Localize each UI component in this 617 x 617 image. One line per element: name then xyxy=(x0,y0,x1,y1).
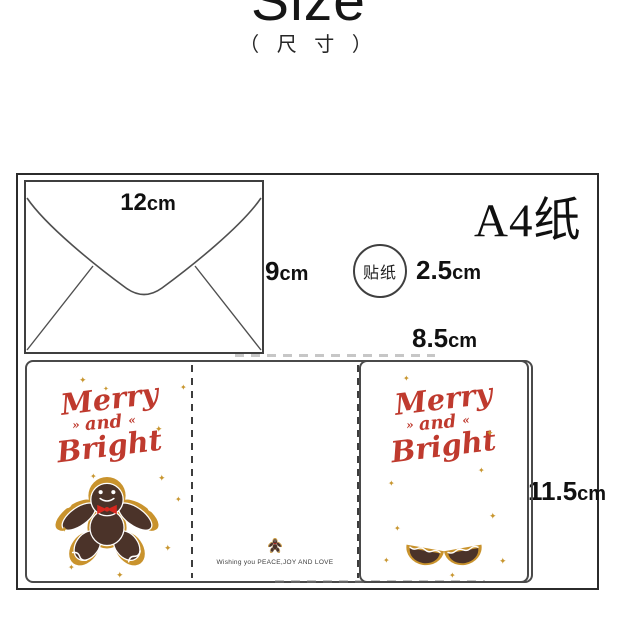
a4-paper-label: A4纸 xyxy=(474,181,581,250)
card-panel-front: Merry » and « Bright ✦ ✦ ✦ ✦ ✦ ✦ ✦ ✦ ✦ ✦… xyxy=(27,362,192,581)
card-panel-folded-front: Merry » and « Bright ✦ ✦ ✦ ✦ ✦ ✦ ✦ ✦ ✦ xyxy=(360,362,527,581)
card-height-label: 11.5cm xyxy=(528,476,606,507)
star-icon: ✦ xyxy=(403,375,410,383)
flourish-icon: » xyxy=(406,418,414,433)
flourish-icon: » xyxy=(72,418,80,433)
star-icon: ✦ xyxy=(489,512,497,521)
card-front-title: Merry » and « Bright xyxy=(360,386,527,461)
star-icon: ✦ xyxy=(175,496,182,504)
star-icon: ✦ xyxy=(478,467,485,475)
star-icon: ✦ xyxy=(388,480,395,488)
envelope-height-label: 9cm xyxy=(265,256,308,287)
star-icon: ✦ xyxy=(90,473,97,481)
sticker-size-label: 2.5cm xyxy=(416,255,481,286)
star-icon: ✦ xyxy=(155,425,163,434)
card-panel-inside: Wishing you PEACE,JOY AND LOVE xyxy=(193,362,357,581)
star-icon: ✦ xyxy=(158,474,166,483)
sticker-circle: 贴纸 xyxy=(353,244,407,298)
page-title: Size xyxy=(0,0,617,30)
card-width-label: 8.5cm xyxy=(412,323,477,354)
gingerbread-man-icon xyxy=(48,477,166,571)
star-icon: ✦ xyxy=(486,429,494,438)
star-icon: ✦ xyxy=(499,557,507,566)
star-icon: ✦ xyxy=(116,571,124,580)
star-icon: ✦ xyxy=(383,557,390,565)
size-diagram-page: Size （ 尺 寸 ） A4纸 12cm 9cm 贴纸 2.5cm 8.5cm xyxy=(0,0,617,617)
card-front-title: Merry » and « Bright xyxy=(27,386,192,461)
star-icon: ✦ xyxy=(79,376,87,385)
watermark-dashes xyxy=(235,354,435,357)
gingerbread-feet-icon xyxy=(404,538,484,571)
card-inside-message: Wishing you PEACE,JOY AND LOVE xyxy=(193,559,357,566)
star-icon: ✦ xyxy=(61,526,68,534)
card-unfolded-diagram: Merry » and « Bright ✦ ✦ ✦ ✦ ✦ ✦ ✦ ✦ ✦ ✦… xyxy=(25,360,529,583)
page-subtitle: （ 尺 寸 ） xyxy=(0,28,617,57)
star-icon: ✦ xyxy=(394,525,401,533)
envelope-diagram: 12cm xyxy=(24,180,264,354)
a4-paper-outline: A4纸 12cm 9cm 贴纸 2.5cm 8.5cm 11.5cm xyxy=(16,173,599,590)
sticker-label: 贴纸 xyxy=(363,259,397,283)
star-icon: ✦ xyxy=(164,544,172,553)
mini-gingerbread-icon xyxy=(267,538,283,554)
star-icon: ✦ xyxy=(103,386,109,393)
envelope-width-label: 12cm xyxy=(88,189,208,217)
star-icon: ✦ xyxy=(180,384,187,392)
star-icon: ✦ xyxy=(68,564,75,572)
star-icon: ✦ xyxy=(449,572,456,580)
